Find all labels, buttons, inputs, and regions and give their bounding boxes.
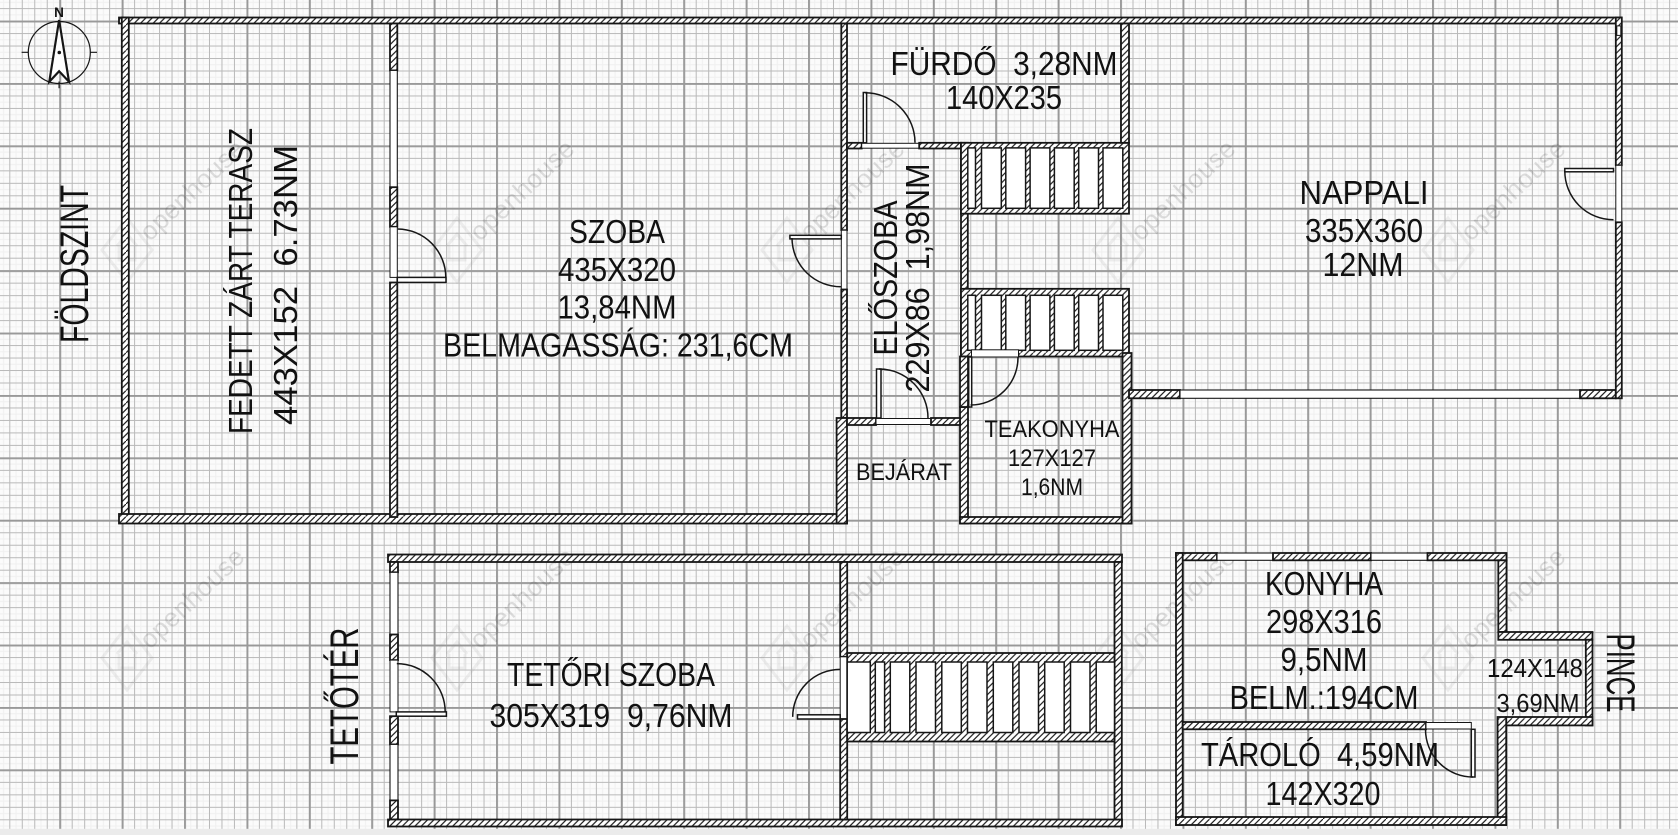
svg-text:FÜRDŐ 3,28NM: FÜRDŐ 3,28NM [891, 45, 1118, 82]
svg-text:142X320: 142X320 [1266, 775, 1381, 812]
svg-text:SZOBA: SZOBA [569, 213, 665, 250]
svg-text:NAPPALI: NAPPALI [1300, 174, 1429, 211]
svg-text:TETŐTÉR: TETŐTÉR [322, 628, 367, 765]
svg-text:229X86 1,98NM: 229X86 1,98NM [899, 164, 936, 393]
svg-text:298X316: 298X316 [1266, 603, 1382, 640]
svg-text:335X360: 335X360 [1305, 212, 1423, 249]
svg-text:1,6NM: 1,6NM [1021, 474, 1083, 501]
svg-text:BEJÁRAT: BEJÁRAT [856, 459, 952, 486]
svg-text:N: N [54, 5, 64, 20]
svg-text:FÖLDSZINT: FÖLDSZINT [53, 185, 97, 343]
svg-text:13,84NM: 13,84NM [558, 289, 677, 326]
svg-text:BELM.:194CM: BELM.:194CM [1230, 679, 1419, 716]
svg-text:305X319 9,76NM: 305X319 9,76NM [490, 697, 733, 734]
svg-text:124X148: 124X148 [1487, 653, 1583, 683]
svg-text:12NM: 12NM [1323, 246, 1404, 283]
svg-text:140X235: 140X235 [946, 79, 1062, 116]
svg-text:TÁROLÓ 4,59NM: TÁROLÓ 4,59NM [1201, 736, 1439, 773]
svg-text:PINCE: PINCE [1598, 634, 1642, 713]
svg-text:BELMAGASSÁG: 231,6CM: BELMAGASSÁG: 231,6CM [443, 326, 793, 363]
svg-text:TETŐRI SZOBA: TETŐRI SZOBA [507, 656, 715, 693]
svg-text:9,5NM: 9,5NM [1281, 641, 1368, 678]
svg-text:3,69NM: 3,69NM [1497, 688, 1580, 718]
svg-text:KONYHA: KONYHA [1265, 565, 1383, 602]
svg-text:443X152 6.73NM: 443X152 6.73NM [267, 145, 304, 425]
svg-text:435X320: 435X320 [558, 251, 676, 288]
svg-text:FEDETT ZÁRT TERASZ: FEDETT ZÁRT TERASZ [222, 128, 259, 434]
svg-text:127X127: 127X127 [1008, 445, 1096, 472]
svg-text:TEAKONYHA: TEAKONYHA [985, 416, 1120, 443]
